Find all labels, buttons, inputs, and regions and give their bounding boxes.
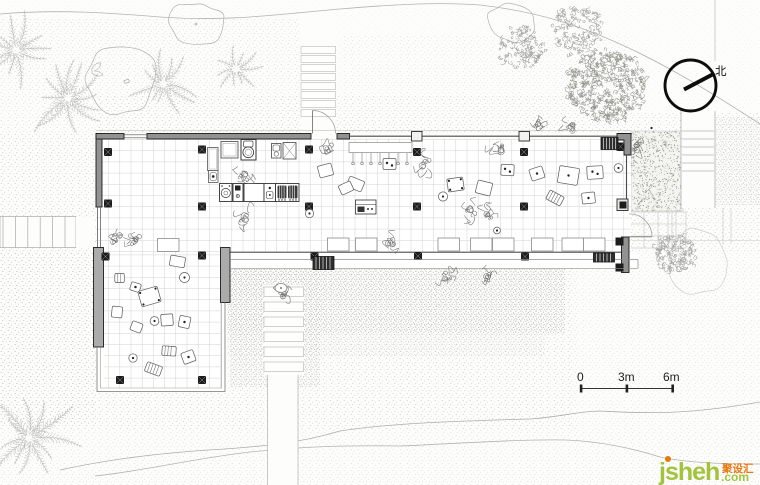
svg-text:.com: .com (721, 470, 749, 484)
svg-text:北: 北 (715, 65, 727, 78)
svg-text:0: 0 (577, 370, 584, 384)
svg-text:3m: 3m (618, 370, 635, 384)
svg-text:jsheh: jsheh (658, 458, 719, 485)
svg-text:6m: 6m (663, 370, 680, 384)
